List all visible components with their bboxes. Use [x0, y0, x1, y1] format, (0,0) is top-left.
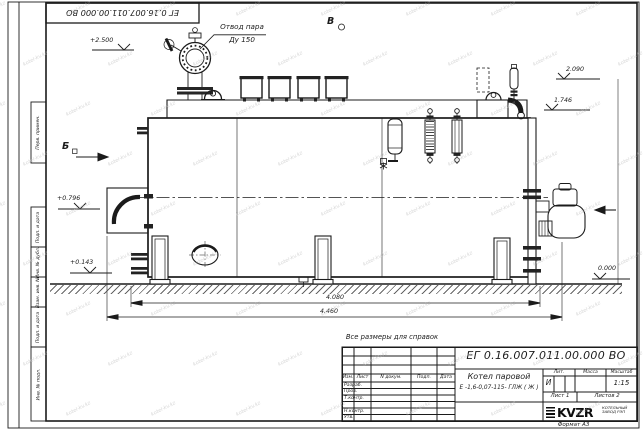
col-data: Дата: [437, 375, 455, 380]
exhaust-valve-unit: [477, 65, 524, 119]
right-burner-unit: [523, 118, 585, 284]
margin-field-label: Подп. и дата: [36, 211, 41, 242]
kvzr-logo-icon: [546, 407, 555, 418]
product-type: Е -1,6-0,07-115- ГЛЖ ( Ж ): [456, 385, 542, 391]
row-prov: Пров.: [344, 389, 357, 394]
left-wall-nozzles: [131, 127, 148, 274]
steam-outlet-dn-label: Ду 150: [215, 36, 269, 44]
row-razrab: Разраб.: [344, 383, 362, 388]
drawing-sheet: ЕГ 0.16.007.011.00.000 ВО Перв. примен. …: [0, 0, 644, 430]
dimension-4080: 4.080: [300, 295, 370, 302]
safety-valves: [240, 76, 349, 102]
bracket: [536, 201, 549, 212]
format-label: Формат А3: [510, 422, 637, 428]
margin-field: Подп. и дата: [31, 307, 46, 347]
burner-housing: [548, 205, 585, 238]
top-stamp: ЕГ 0.16.007.011.00.000 ВО: [46, 3, 199, 23]
elevation-2500: +2.500: [90, 38, 113, 45]
elevation-1746: 1.746: [554, 98, 572, 105]
top-stamp-number: ЕГ 0.16.007.011.00.000 ВО: [66, 8, 179, 18]
steam-outlet-valve: [164, 28, 213, 100]
gauge-glass-hatch: [426, 121, 434, 152]
elevation-marks: [58, 44, 630, 279]
company-name: КОТЕЛЬНЫЙ ЗАВОД РЭП: [602, 406, 637, 415]
elevation-2090: 2.090: [566, 67, 584, 74]
row-tkontr: Т.контр.: [344, 396, 364, 401]
left-fan-unit: [107, 188, 153, 233]
col-list: Лист: [354, 375, 371, 380]
margin-field-label: Перв. примен.: [36, 115, 41, 150]
lit-value: И: [543, 379, 554, 387]
kvzr-logo-text: KVZR: [557, 405, 593, 420]
margin-field: Перв. примен.: [31, 102, 46, 163]
row-utv: Утв.: [344, 415, 354, 420]
lifting-lug: [486, 93, 501, 100]
burner-motor: [553, 189, 577, 206]
doc-number: ЕГ 0.16.007.011.00.000 ВО: [457, 350, 635, 362]
company-line2: ЗАВОД РЭП: [602, 410, 637, 415]
view-label-v: В: [327, 17, 334, 27]
drawing-canvas: [0, 0, 644, 430]
product-name: Котел паровой: [456, 373, 542, 382]
scale-value: 1:15: [606, 380, 637, 388]
safety-valve: [510, 68, 518, 89]
view-arrow-right: [595, 206, 605, 214]
sheet-label: Лист 1: [543, 394, 577, 400]
elevation-0143: +0.143: [70, 260, 93, 267]
elevation-0000: 0.000: [598, 266, 616, 273]
fan-scroll: [114, 197, 140, 224]
view-label-b: Б: [62, 142, 69, 152]
mass-header: Масса: [575, 370, 606, 375]
col-izm: Изм.: [342, 375, 354, 380]
view-arrow-b: [98, 153, 108, 161]
col-podp: Подп.: [411, 375, 437, 380]
margin-field-label: Инв. № подл.: [36, 368, 41, 400]
margin-field-label: Взам. инв. №: [36, 276, 41, 307]
margin-field: Инв. № подл.: [31, 347, 46, 421]
lit-header: Лит.: [543, 370, 575, 375]
row-nkontr: Н.контр.: [344, 409, 365, 414]
margin-field-label: Инв. № дубл.: [36, 246, 41, 277]
page-frame: [8, 2, 639, 428]
exhaust-elbow: [508, 100, 521, 113]
margin-field: Инв. № дубл.: [31, 247, 46, 277]
elevation-0796: +0.796: [57, 196, 80, 203]
scale-header: Масштаб: [606, 370, 637, 375]
steam-outlet-label: Отвод пара: [215, 23, 269, 31]
sheets-label: Листов 2: [577, 394, 637, 400]
reference-note: Все размеры для справок: [344, 334, 440, 341]
manhole: [189, 241, 221, 269]
gauge-glass: [452, 120, 462, 153]
margin-field-label: Подп. и дата: [36, 311, 41, 342]
company-logo: KVZR: [546, 405, 593, 420]
margin-field: Взам. инв. №: [31, 277, 46, 307]
col-doc: N докум.: [371, 375, 411, 380]
dimension-4460: 4.460: [294, 309, 364, 316]
margin-field: Подп. и дата: [31, 207, 46, 247]
water-column: [388, 119, 402, 154]
ground-hatch: [50, 285, 622, 294]
